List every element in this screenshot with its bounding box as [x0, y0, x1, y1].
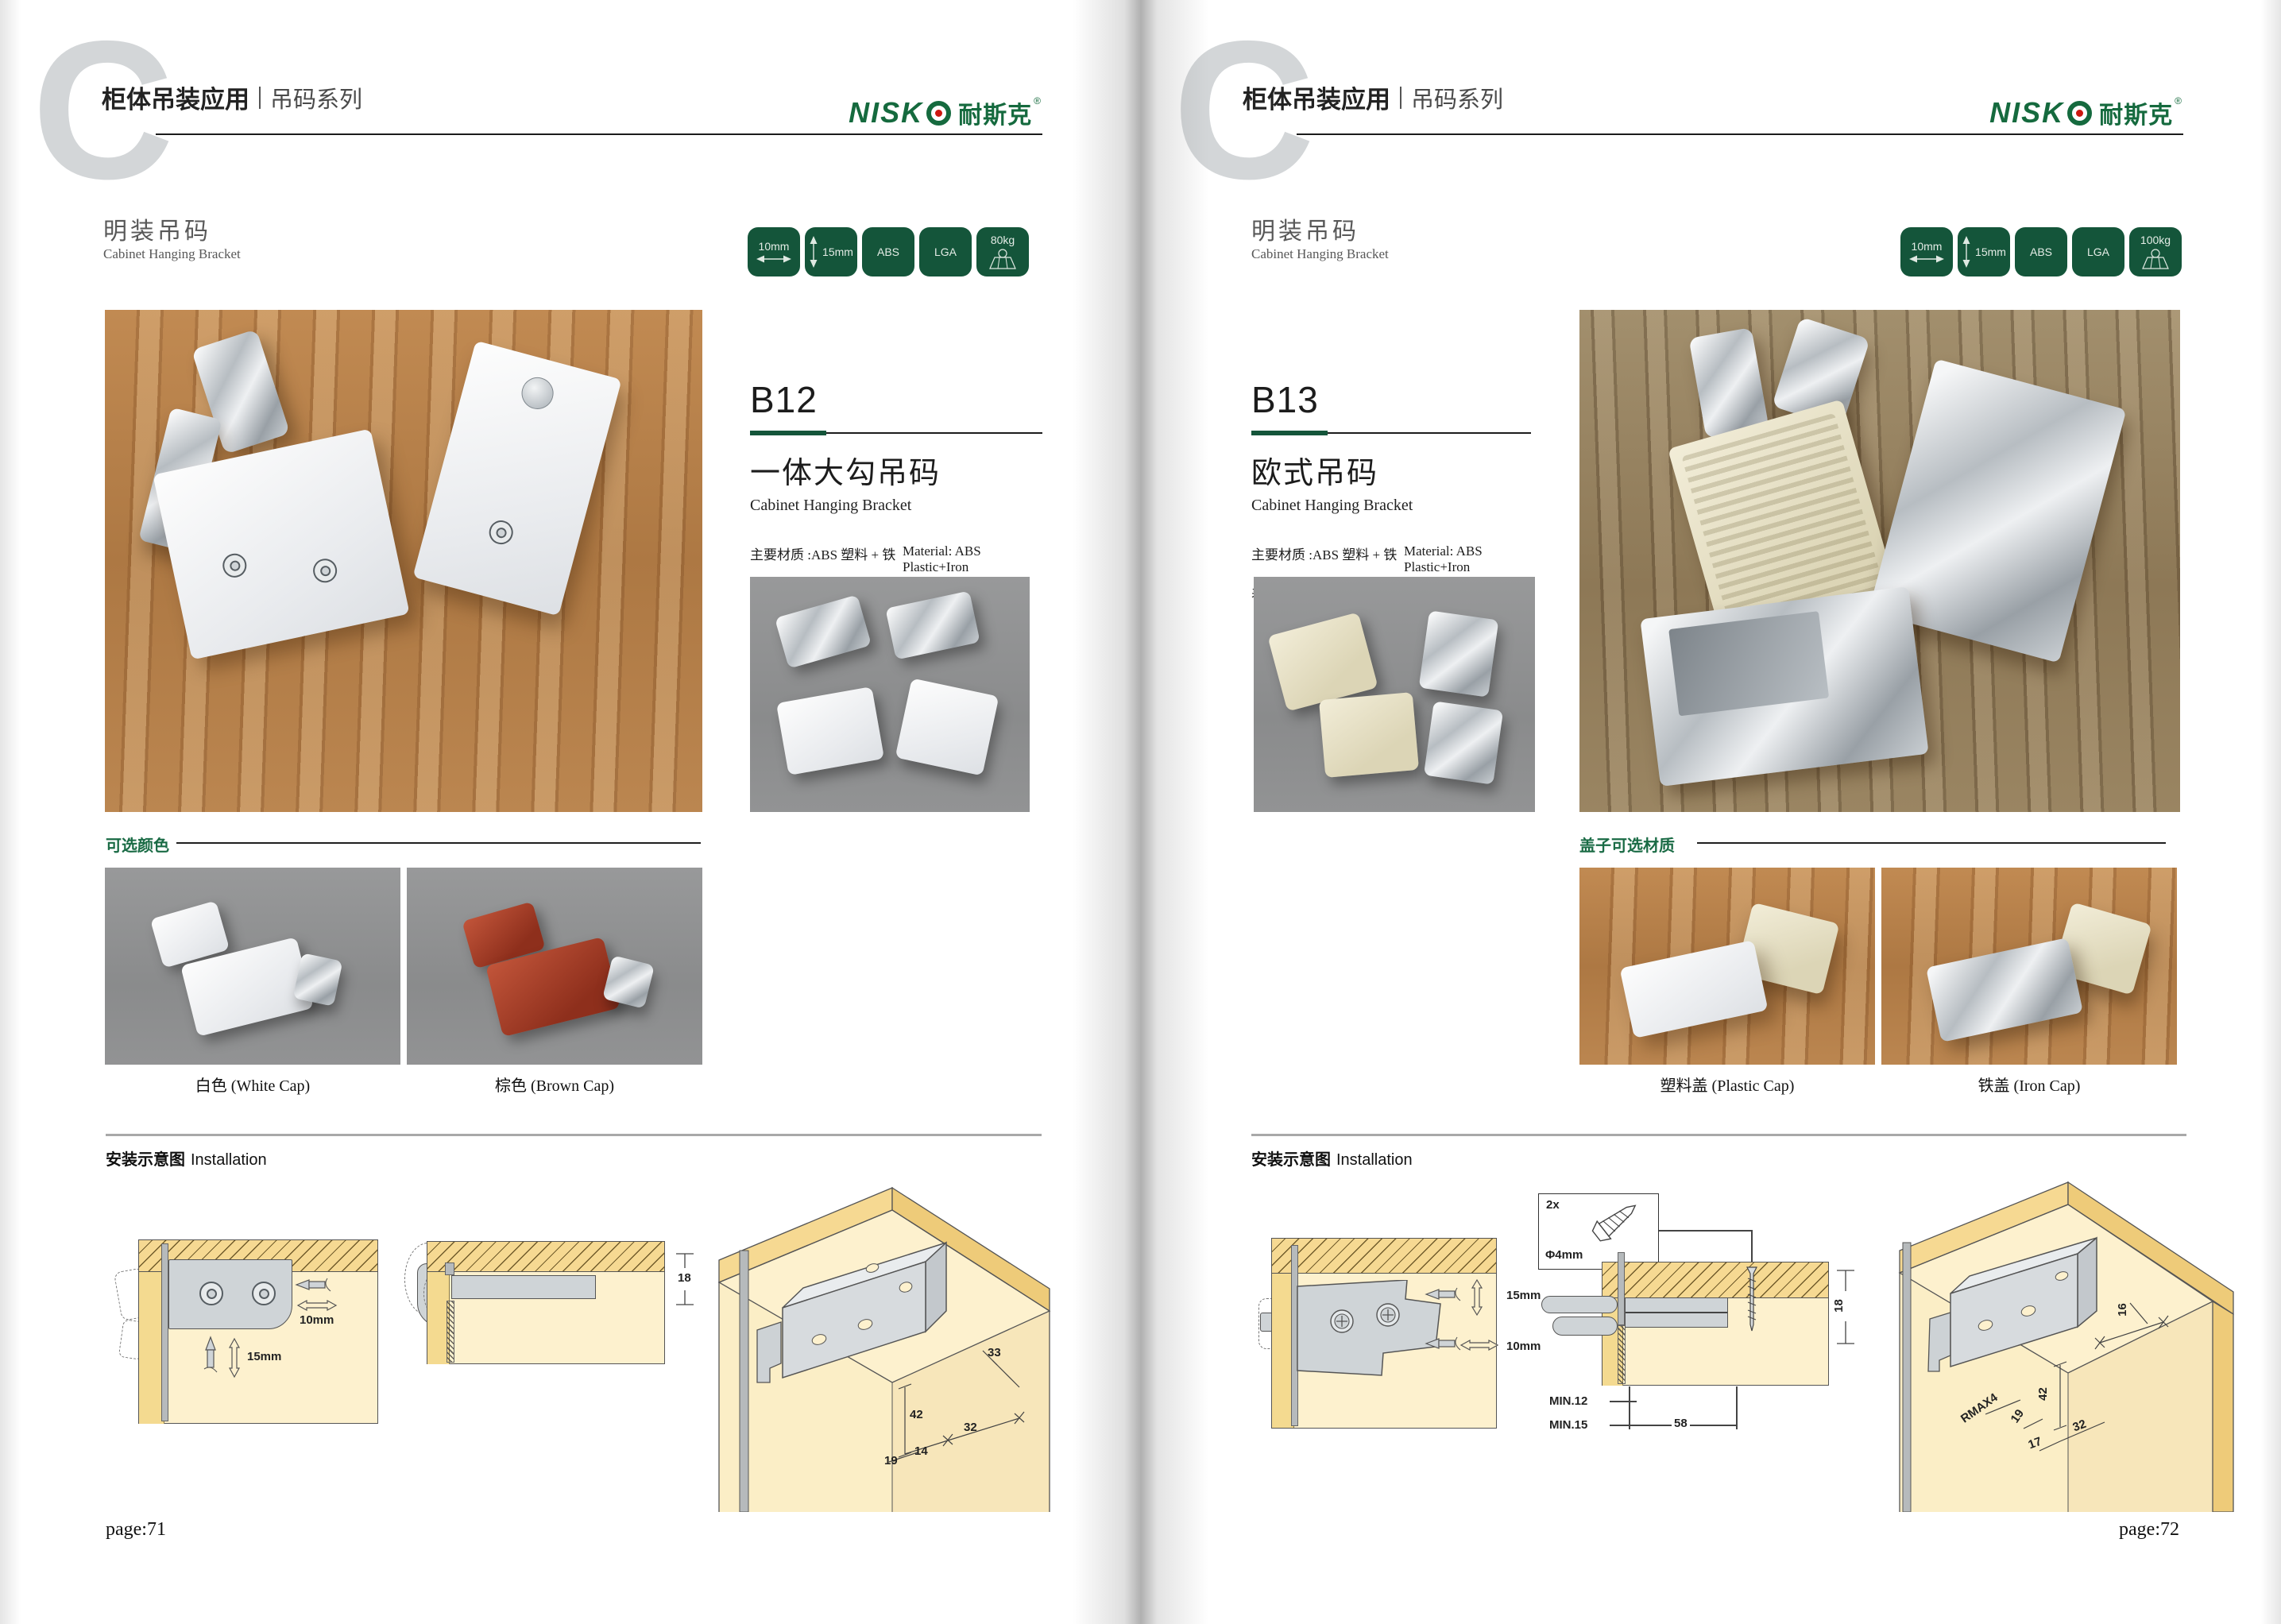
- header-divider: [1400, 87, 1401, 109]
- badge-material-label: ABS: [877, 246, 899, 257]
- width-arrow-icon: [1908, 254, 1945, 264]
- cabinet-3d-drawing: [709, 1174, 1053, 1512]
- product-name-en: Cabinet Hanging Bracket: [750, 497, 1042, 515]
- badge-cert-label: LGA: [934, 246, 957, 257]
- header-rule: [1297, 133, 2183, 135]
- dim-line: [1736, 1386, 1738, 1429]
- metal-hook-shape: [293, 953, 343, 1007]
- product-rule: [1251, 431, 1531, 435]
- white-bracket-shape: [412, 341, 621, 617]
- install-diagram-3d: 16 42 RMAX4 19 17 32: [1892, 1174, 2237, 1512]
- screw-hole: [486, 518, 516, 547]
- install-diagram-side: 18 MIN.12 MIN.15 58: [1537, 1228, 1882, 1442]
- section-title-en: Cabinet Hanging Bracket: [103, 246, 241, 262]
- load-capacity-icon: [986, 248, 1019, 270]
- back-panel-groove: [1618, 1325, 1626, 1384]
- logo-latin: NISK: [849, 96, 923, 130]
- iron-cap-shape: [1926, 938, 2083, 1042]
- brand-logo: NISK 耐斯克 ®: [1989, 95, 2182, 130]
- badge-load: 100kg: [2129, 227, 2182, 276]
- install-diagram-3d: 33 42 32 14 19: [709, 1174, 1053, 1512]
- header-divider: [259, 87, 261, 109]
- install-rule: [1251, 1134, 2186, 1136]
- dim-d: 14: [914, 1444, 928, 1458]
- option-photo-brown: [407, 868, 702, 1065]
- badge-width: 10mm: [1900, 227, 1953, 276]
- badge-width-label: 10mm: [1912, 241, 1943, 252]
- cabinet-section-drawing: [427, 1241, 665, 1364]
- brand-logo: NISK 耐斯克 ®: [849, 95, 1041, 130]
- install-label: 安装示意图Installation: [1251, 1146, 1413, 1170]
- catalog-spread: C 柜体吊装应用 吊码系列 NISK 耐斯克 ® 明装吊码 Cabinet Ha…: [0, 0, 2281, 1624]
- spec-material-en: Material: ABS Plastic+Iron: [1404, 543, 1531, 575]
- options-label: 可选颜色: [106, 833, 169, 856]
- badge-material: ABS: [862, 227, 914, 276]
- install-diagram-front: 15mm 10mm: [1258, 1224, 1572, 1448]
- product-photo-secondary: [750, 577, 1030, 812]
- width-arrow-outline-icon: [1459, 1339, 1499, 1351]
- dim-depth: 18: [1832, 1299, 1846, 1313]
- dim-a: 33: [988, 1346, 1001, 1359]
- product-code: B12: [750, 378, 1042, 421]
- dim-len: 58: [1672, 1417, 1690, 1430]
- metal-hook-shape: [1688, 327, 1769, 439]
- header-subtitle: 吊码系列: [1411, 81, 1503, 114]
- product-photo-secondary: [1254, 577, 1535, 812]
- options-rule: [176, 842, 701, 844]
- badge-width-label: 10mm: [759, 241, 790, 252]
- cream-bracket-shape: [1319, 692, 1419, 778]
- hatched-top-panel: [1272, 1239, 1496, 1274]
- dim-c: 32: [964, 1421, 977, 1434]
- install-diagram-side: 18: [409, 1236, 705, 1376]
- section-title-en: Cabinet Hanging Bracket: [1251, 246, 1389, 262]
- back-panel: [1618, 1252, 1625, 1325]
- spec-badges: 10mm 15mm ABS LGA 100kg: [1900, 227, 2182, 276]
- screw-qty: 2x: [1546, 1198, 1560, 1212]
- product-name-en: Cabinet Hanging Bracket: [1251, 497, 1531, 515]
- product-photo-main: [105, 310, 702, 812]
- option-caption: 铁盖 (Iron Cap): [1881, 1073, 2177, 1096]
- callout-connector: [1659, 1230, 1753, 1232]
- install-label-cn: 安装示意图: [106, 1151, 185, 1169]
- product-info: B13 欧式吊码 Cabinet Hanging Bracket 主要材质 :A…: [1251, 378, 1531, 603]
- spec-material-cn: 主要材质 :ABS 塑料 + 铁: [750, 543, 903, 575]
- cabinet-section-drawing: [1271, 1238, 1497, 1429]
- product-name-cn: 一体大勾吊码: [750, 448, 1042, 492]
- bracket-drawing: [168, 1259, 292, 1329]
- logo-o-icon: [926, 101, 951, 126]
- header-rule: [156, 133, 1042, 135]
- logo-cjk: 耐斯克: [958, 95, 1032, 130]
- dim-width: 10mm: [300, 1313, 334, 1327]
- options-rule: [1697, 842, 2166, 844]
- logo-red-dot: [2076, 110, 2083, 117]
- option-caption: 白色 (White Cap): [105, 1073, 400, 1096]
- header-title: 柜体吊装应用 吊码系列: [1243, 79, 1503, 115]
- badge-width: 10mm: [748, 227, 800, 276]
- metal-rail-shape: [1419, 610, 1499, 697]
- hook-drawing: [1541, 1296, 1618, 1313]
- screwdriver-icon: [1425, 1286, 1467, 1302]
- badge-load: 80kg: [976, 227, 1029, 276]
- dim-line: [1629, 1386, 1630, 1429]
- cabinet-section-drawing: 10mm 15mm: [138, 1239, 378, 1424]
- product-code: B13: [1251, 378, 1531, 421]
- width-arrow-icon: [756, 254, 792, 264]
- metal-rail-shape: [775, 594, 872, 668]
- screw-hole: [220, 551, 249, 580]
- dim-depth: 18: [678, 1271, 691, 1285]
- install-diagram-front: 10mm 15mm: [118, 1224, 388, 1440]
- options-label: 盖子可选材质: [1579, 833, 1675, 856]
- cabinet-3d-drawing: [1892, 1174, 2237, 1512]
- badge-cert: LGA: [919, 227, 972, 276]
- install-label: 安装示意图Installation: [106, 1146, 267, 1170]
- dim-width: 10mm: [1506, 1340, 1541, 1353]
- white-bracket-shape: [895, 678, 999, 775]
- logo-o-icon: [2067, 101, 2092, 126]
- screwdriver-icon-vertical: [203, 1336, 218, 1380]
- load-capacity-icon: [2139, 248, 2172, 270]
- header-title: 柜体吊装应用 吊码系列: [102, 79, 362, 115]
- page-number: page:72: [2119, 1519, 2179, 1541]
- spec-badges: 10mm 15mm ABS LGA 80kg: [748, 227, 1029, 276]
- hatched-top-panel: [427, 1242, 664, 1272]
- dim-b: 42: [2036, 1387, 2050, 1401]
- spec-material-en: Material: ABS Plastic+Iron: [903, 543, 1042, 575]
- dim-min2: MIN.15: [1549, 1418, 1587, 1432]
- install-label-cn: 安装示意图: [1251, 1151, 1331, 1169]
- logo-reg-mark: ®: [1034, 95, 1041, 106]
- badge-height: 15mm: [1958, 227, 2010, 276]
- install-label-en: Installation: [191, 1151, 267, 1169]
- screw-hole: [311, 556, 339, 585]
- page-right: C 柜体吊装应用 吊码系列 NISK 耐斯克 ® 明装吊码 Cabinet Ha…: [1141, 0, 2281, 1624]
- section-title-cn: 明装吊码: [103, 211, 211, 246]
- section-title-cn: 明装吊码: [1251, 211, 1359, 246]
- product-info: B12 一体大勾吊码 Cabinet Hanging Bracket 主要材质 …: [750, 378, 1042, 603]
- spec-material-cn: 主要材质 :ABS 塑料 + 铁: [1251, 543, 1404, 575]
- badge-cert-label: LGA: [2087, 246, 2109, 257]
- badge-material-label: ABS: [2030, 246, 2052, 257]
- dim-height: 15mm: [1506, 1289, 1541, 1302]
- bracket-arm-drawing: [451, 1275, 596, 1299]
- option-photo-white: [105, 868, 400, 1065]
- metal-rail-shape: [885, 590, 980, 659]
- dim-b: 42: [910, 1408, 923, 1421]
- install-rule: [106, 1134, 1042, 1136]
- badge-height: 15mm: [805, 227, 857, 276]
- bracket-midline: [1626, 1312, 1727, 1313]
- dim-min1: MIN.12: [1549, 1394, 1587, 1408]
- width-arrow-outline-icon: [296, 1299, 338, 1312]
- height-arrow-icon: [1962, 235, 1971, 269]
- option-caption: 棕色 (Brown Cap): [407, 1073, 702, 1096]
- back-panel: [161, 1243, 168, 1421]
- back-panel-groove: [447, 1301, 454, 1363]
- install-label-en: Installation: [1336, 1151, 1413, 1169]
- logo-reg-mark: ®: [2175, 95, 2182, 106]
- header-title-cn: 柜体吊装应用: [1243, 79, 1390, 115]
- dim-e: 19: [884, 1454, 898, 1467]
- screwdriver-icon: [295, 1277, 338, 1293]
- bracket-arm-drawing: [1625, 1297, 1728, 1328]
- screw-hole: [199, 1282, 223, 1305]
- header-subtitle: 吊码系列: [270, 81, 362, 114]
- height-arrow-outline-icon: [1471, 1278, 1483, 1317]
- screw-drawing: [1737, 1266, 1767, 1339]
- hook-drawing: [1552, 1317, 1618, 1336]
- dim-line: [1610, 1425, 1629, 1426]
- dim-line: [1610, 1401, 1637, 1402]
- page-number: page:71: [106, 1519, 166, 1541]
- badge-height-label: 15mm: [1975, 246, 2006, 257]
- nickel-box-shape: [1640, 586, 1928, 787]
- product-name-cn: 欧式吊码: [1251, 448, 1531, 492]
- option-caption: 塑料盖 (Plastic Cap): [1579, 1073, 1875, 1096]
- white-bracket-shape: [776, 686, 884, 775]
- badge-height-label: 15mm: [822, 246, 853, 257]
- product-rule: [750, 431, 1042, 435]
- height-arrow-outline-icon: [228, 1337, 241, 1378]
- plastic-cap-shape: [1620, 940, 1769, 1038]
- back-panel-tab: [445, 1262, 454, 1275]
- header-title-cn: 柜体吊装应用: [102, 79, 249, 115]
- page-left: C 柜体吊装应用 吊码系列 NISK 耐斯克 ® 明装吊码 Cabinet Ha…: [0, 0, 1140, 1624]
- screw-head: [518, 373, 557, 412]
- badge-cert: LGA: [2072, 227, 2124, 276]
- product-photo-main: [1579, 310, 2180, 812]
- dim-a: 16: [2116, 1303, 2129, 1317]
- logo-cjk: 耐斯克: [2099, 95, 2173, 130]
- metal-rail-shape: [1424, 701, 1503, 784]
- hatched-top-panel: [1602, 1262, 1828, 1298]
- box-inner-face: [1668, 611, 1829, 717]
- screw-hole: [252, 1282, 276, 1305]
- logo-latin: NISK: [1989, 96, 2064, 130]
- badge-load-label: 100kg: [2140, 234, 2171, 246]
- badge-material: ABS: [2015, 227, 2067, 276]
- dim-height: 15mm: [247, 1350, 281, 1363]
- logo-red-dot: [935, 110, 942, 117]
- option-photo-iron: [1881, 868, 2177, 1065]
- height-arrow-icon: [809, 235, 818, 269]
- badge-load-label: 80kg: [991, 234, 1015, 246]
- option-photo-plastic: [1579, 868, 1875, 1065]
